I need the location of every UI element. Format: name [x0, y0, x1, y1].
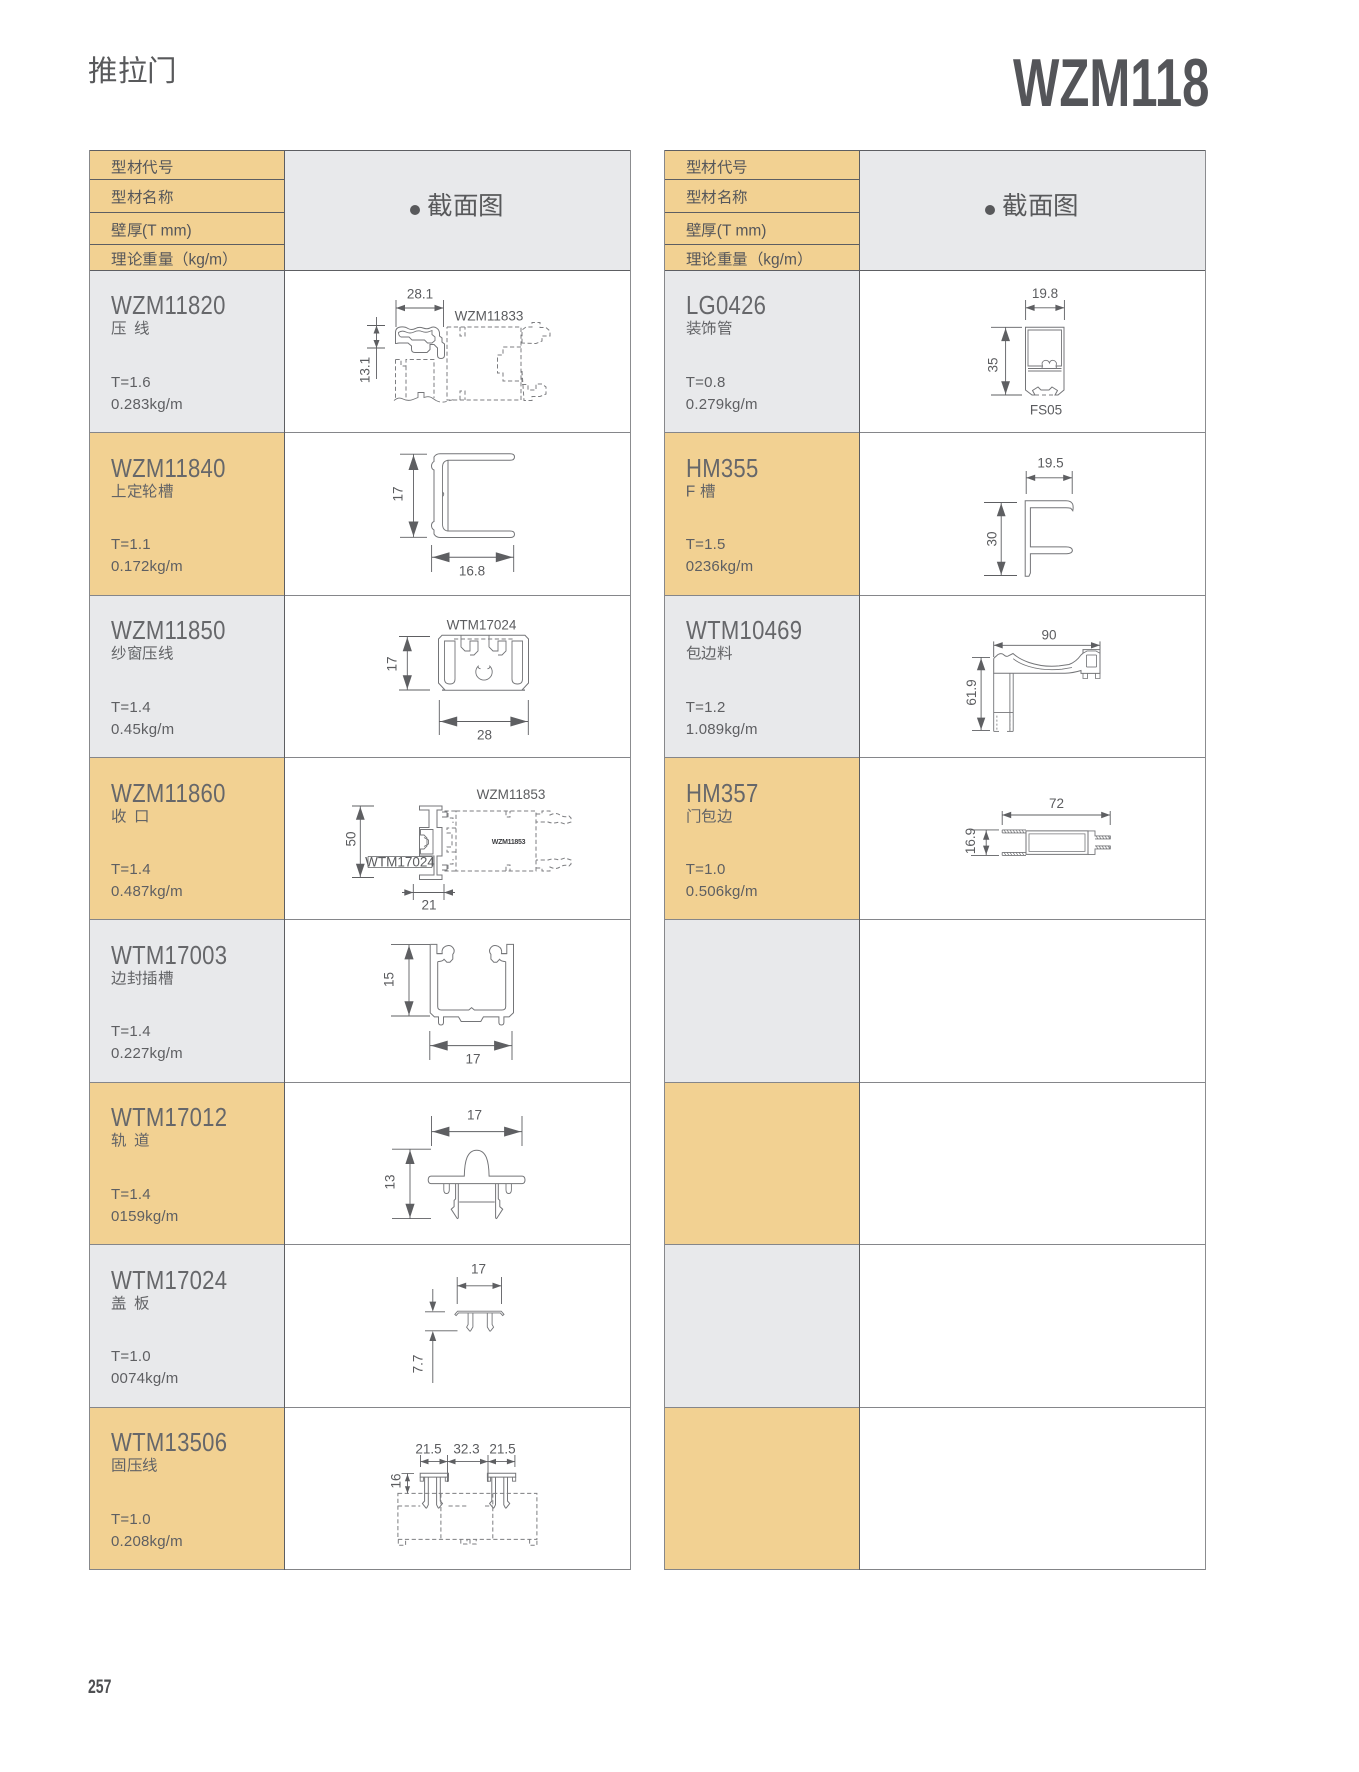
svg-text:WTM17024: WTM17024: [446, 617, 516, 632]
svg-text:30: 30: [984, 532, 999, 547]
svg-text:28: 28: [476, 727, 491, 742]
svg-text:FS05: FS05: [1030, 402, 1062, 417]
svg-text:WZM11853: WZM11853: [476, 787, 545, 802]
svg-text:17: 17: [466, 1107, 481, 1122]
svg-text:17: 17: [384, 656, 399, 671]
svg-text:32.3: 32.3: [453, 1441, 479, 1456]
svg-text:21: 21: [421, 898, 436, 913]
svg-text:61.9: 61.9: [964, 679, 979, 705]
svg-text:13: 13: [382, 1174, 397, 1189]
svg-text:21.5: 21.5: [489, 1441, 515, 1456]
svg-text:72: 72: [1049, 796, 1064, 811]
svg-text:19.8: 19.8: [1032, 286, 1058, 301]
svg-text:28.1: 28.1: [406, 286, 432, 301]
svg-text:16: 16: [388, 1473, 403, 1488]
svg-text:90: 90: [1041, 627, 1056, 642]
svg-text:7.7: 7.7: [410, 1355, 425, 1374]
svg-text:17: 17: [390, 487, 405, 502]
svg-text:17: 17: [470, 1262, 485, 1277]
svg-text:50: 50: [343, 831, 358, 846]
svg-text:WZM11853: WZM11853: [491, 839, 525, 846]
svg-text:21.5: 21.5: [415, 1441, 441, 1456]
svg-text:17: 17: [465, 1052, 480, 1067]
svg-text:16.8: 16.8: [458, 564, 484, 579]
svg-text:35: 35: [985, 357, 1000, 372]
svg-text:19.5: 19.5: [1037, 456, 1063, 471]
svg-text:16.9: 16.9: [963, 828, 978, 854]
svg-text:WZM11833: WZM11833: [454, 308, 523, 323]
svg-text:15: 15: [381, 972, 396, 987]
svg-text:13.1: 13.1: [357, 357, 372, 383]
